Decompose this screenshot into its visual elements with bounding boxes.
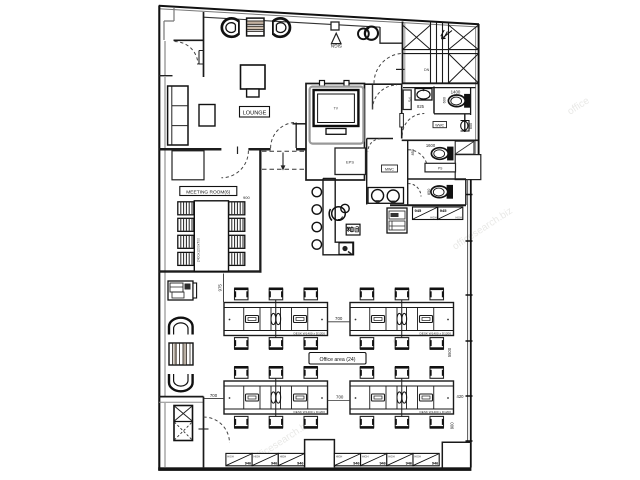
svg-text:TV: TV bbox=[334, 107, 339, 111]
svg-text:700: 700 bbox=[336, 395, 344, 400]
svg-text:600: 600 bbox=[469, 123, 473, 129]
svg-text:900: 900 bbox=[449, 422, 454, 430]
svg-text:1600: 1600 bbox=[426, 143, 436, 148]
svg-text:420: 420 bbox=[457, 394, 465, 399]
svg-text:PS: PS bbox=[438, 167, 443, 171]
svg-text:Office area (24): Office area (24) bbox=[320, 357, 356, 363]
svg-text:DN: DN bbox=[424, 68, 430, 72]
svg-text:850: 850 bbox=[427, 189, 431, 195]
svg-text:600: 600 bbox=[442, 97, 446, 103]
svg-text:EPS: EPS bbox=[346, 160, 354, 165]
svg-text:850: 850 bbox=[411, 149, 415, 155]
svg-text:1400: 1400 bbox=[451, 89, 461, 94]
svg-text:PS: PS bbox=[408, 98, 412, 103]
svg-text:900: 900 bbox=[243, 195, 250, 200]
svg-text:2400x1200x700: 2400x1200x700 bbox=[196, 238, 200, 262]
svg-text:LOUNGE: LOUNGE bbox=[243, 110, 267, 116]
svg-text:825: 825 bbox=[417, 104, 425, 109]
svg-text:SIGN: SIGN bbox=[331, 44, 342, 49]
svg-text:700: 700 bbox=[335, 316, 343, 321]
svg-text:975: 975 bbox=[217, 284, 222, 292]
svg-text:WWC: WWC bbox=[435, 123, 444, 127]
svg-text:5500: 5500 bbox=[447, 347, 452, 357]
svg-text:MWC: MWC bbox=[385, 168, 394, 172]
svg-text:700: 700 bbox=[210, 393, 218, 398]
svg-text:MEETING ROOM(6): MEETING ROOM(6) bbox=[186, 189, 230, 195]
